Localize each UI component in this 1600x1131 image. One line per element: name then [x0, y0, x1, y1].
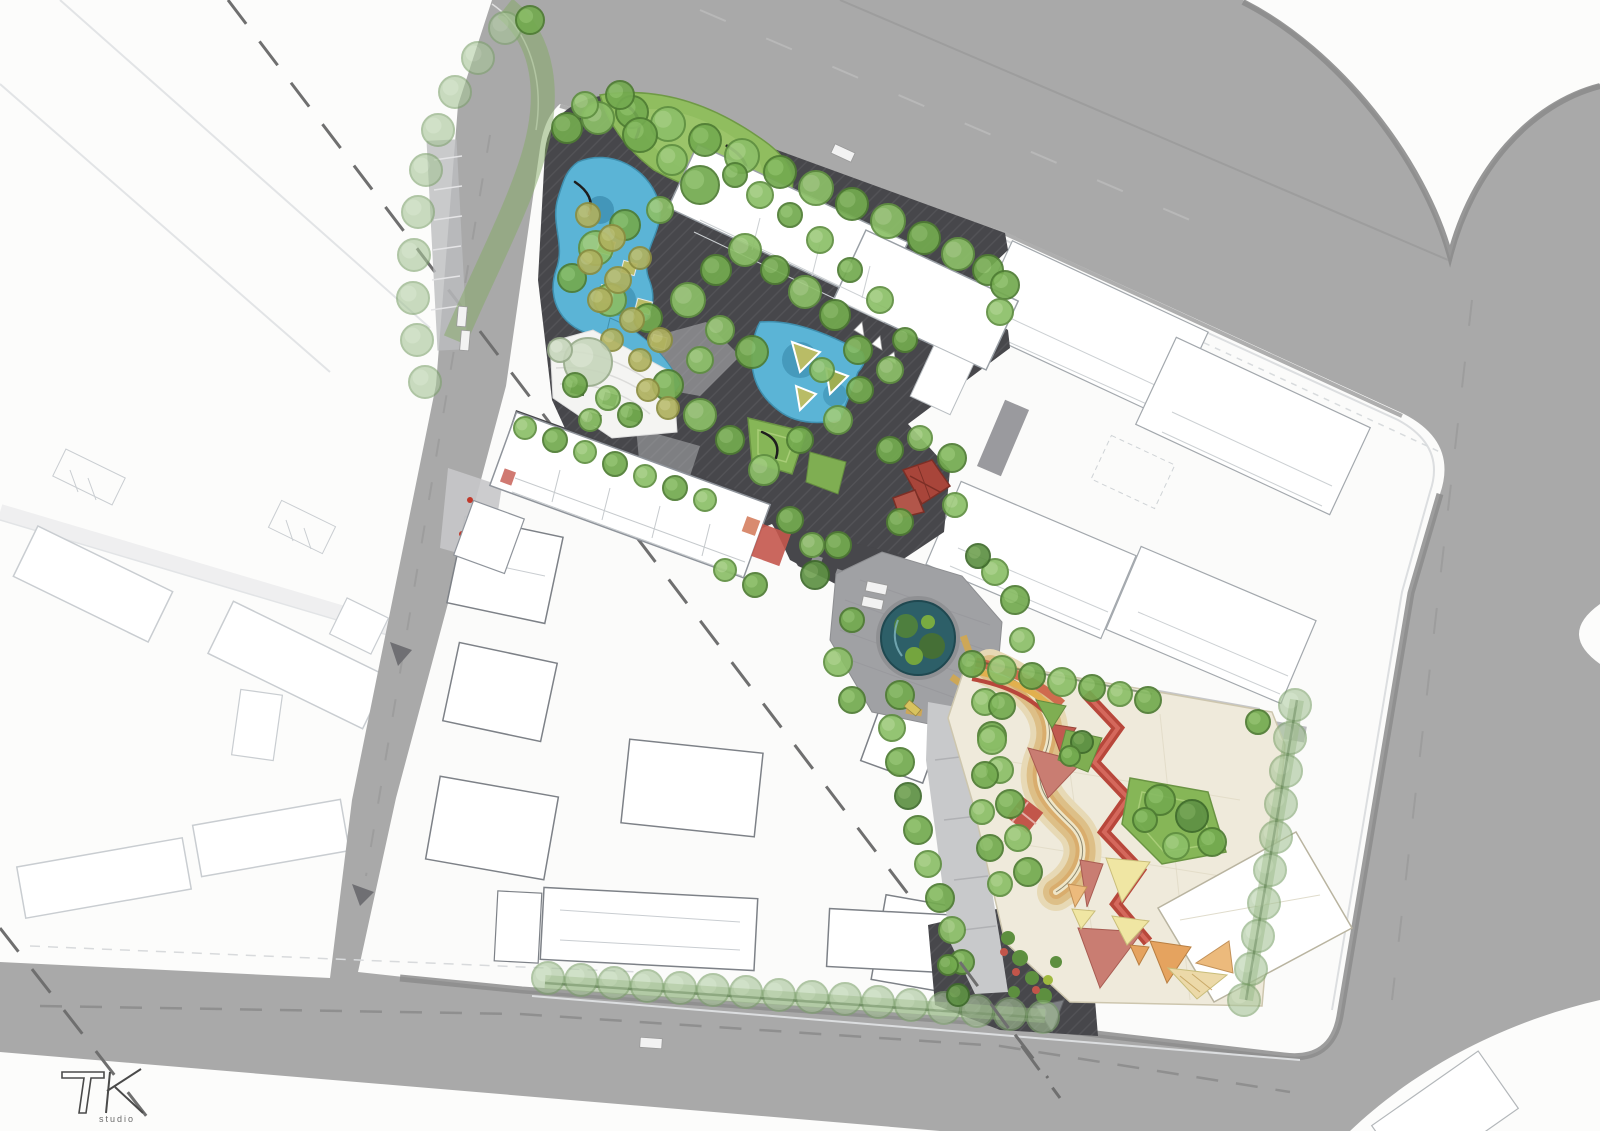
tree [1176, 800, 1208, 832]
tree [706, 316, 734, 344]
tree [1260, 821, 1292, 853]
tree [657, 397, 679, 419]
tree [989, 693, 1015, 719]
tree [398, 239, 430, 271]
tree [596, 386, 620, 410]
tree [1274, 722, 1306, 754]
tree [895, 989, 927, 1021]
tree [1279, 689, 1311, 721]
shrub [1025, 971, 1039, 985]
tree [743, 573, 767, 597]
shrub [1001, 931, 1015, 945]
tree [401, 324, 433, 356]
tree [747, 182, 773, 208]
tree [879, 715, 905, 741]
tree [565, 964, 597, 996]
tree [629, 247, 651, 269]
tree [532, 962, 564, 994]
tree [657, 145, 687, 175]
tree [939, 917, 965, 943]
tree [836, 188, 868, 220]
tree [1228, 984, 1260, 1016]
tree [410, 154, 442, 186]
site-building [540, 887, 757, 970]
tree [516, 6, 544, 34]
tree [943, 493, 967, 517]
tree [778, 203, 802, 227]
left-building [232, 689, 283, 760]
tree [938, 444, 966, 472]
tree [637, 379, 659, 401]
tree [1135, 687, 1161, 713]
tree [723, 163, 747, 187]
pond-plant [921, 615, 935, 629]
tree [462, 42, 494, 74]
car [457, 306, 468, 327]
tree [689, 124, 721, 156]
tree [966, 544, 990, 568]
tree [548, 338, 572, 362]
tree [1108, 682, 1132, 706]
tree [572, 92, 598, 118]
tree [1060, 746, 1080, 766]
tree [862, 986, 894, 1018]
tree [908, 222, 940, 254]
pond-plant [894, 614, 918, 638]
shrub [1050, 956, 1062, 968]
tree [543, 428, 567, 452]
tree [829, 983, 861, 1015]
tree [1163, 833, 1189, 859]
tree [631, 970, 663, 1002]
tree [681, 166, 719, 204]
tree [578, 250, 602, 274]
tree [1270, 755, 1302, 787]
tree [736, 336, 768, 368]
tree [926, 884, 954, 912]
tree [397, 282, 429, 314]
tree [871, 204, 905, 238]
tree [618, 403, 642, 427]
tree [1235, 953, 1267, 985]
tree [588, 288, 612, 312]
tree [576, 203, 600, 227]
tree [402, 196, 434, 228]
tree [422, 114, 454, 146]
tree [1019, 663, 1045, 689]
tree [684, 399, 716, 431]
tree [1246, 710, 1270, 734]
tree [634, 465, 656, 487]
logo-studio-text: studio [82, 1114, 152, 1124]
tree [687, 347, 713, 373]
tree [938, 955, 958, 975]
tree [514, 417, 536, 439]
shrub-yellow [1043, 975, 1053, 985]
tree [623, 118, 657, 152]
tree [1265, 788, 1297, 820]
tree [959, 651, 985, 677]
tree [439, 76, 471, 108]
pond-plant [905, 647, 923, 665]
tree [1001, 586, 1029, 614]
tree [844, 336, 872, 364]
tree [887, 509, 913, 535]
tree [824, 406, 852, 434]
site-building [494, 891, 542, 963]
tree [904, 816, 932, 844]
tree [877, 357, 903, 383]
tree [579, 409, 601, 431]
tree [825, 532, 851, 558]
tree [867, 287, 893, 313]
tree [988, 872, 1012, 896]
tree [1027, 1001, 1059, 1033]
tree [908, 426, 932, 450]
tree [1048, 668, 1076, 696]
tree [701, 255, 731, 285]
tree [1254, 854, 1286, 886]
tree [1014, 858, 1042, 886]
tree [789, 276, 821, 308]
tree [1010, 628, 1034, 652]
tree [893, 328, 917, 352]
tree [807, 227, 833, 253]
tree [777, 507, 803, 533]
tree [761, 256, 789, 284]
tree [603, 452, 627, 476]
car [640, 1037, 663, 1049]
tree [716, 426, 744, 454]
tree [820, 300, 850, 330]
tree [1242, 920, 1274, 952]
masterplan: studio [0, 0, 1600, 1131]
tree [749, 455, 779, 485]
tree [991, 271, 1019, 299]
tree [620, 308, 644, 332]
tree [648, 328, 672, 352]
masterplan-svg [0, 0, 1600, 1131]
tree [563, 373, 587, 397]
tree [574, 441, 596, 463]
tree [824, 648, 852, 676]
tree [847, 377, 873, 403]
tree [799, 171, 833, 205]
tree [840, 608, 864, 632]
tree [988, 656, 1016, 684]
tree [605, 267, 631, 293]
tree [647, 197, 673, 223]
tree [810, 358, 834, 382]
tree [694, 489, 716, 511]
tree [599, 225, 625, 251]
tree [978, 726, 1006, 754]
tree [877, 437, 903, 463]
tree [947, 984, 969, 1006]
tree [730, 976, 762, 1008]
tree [787, 427, 813, 453]
tree [796, 981, 828, 1013]
tree [606, 81, 634, 109]
tree [801, 561, 829, 589]
tree [1248, 887, 1280, 919]
tree [977, 835, 1003, 861]
site-building [621, 739, 763, 837]
patch-dot [467, 497, 473, 503]
tree [671, 283, 705, 317]
tree [764, 156, 796, 188]
tree [839, 687, 865, 713]
shrub [1008, 986, 1020, 998]
tree [714, 559, 736, 581]
tree [729, 234, 761, 266]
tree [552, 113, 582, 143]
tree [629, 349, 651, 371]
tree [987, 299, 1013, 325]
tree [915, 851, 941, 877]
tree [409, 366, 441, 398]
tree [763, 979, 795, 1011]
tree [1079, 675, 1105, 701]
tree [664, 972, 696, 1004]
tree [970, 800, 994, 824]
tree [838, 258, 862, 282]
tree [697, 974, 729, 1006]
tree [1198, 828, 1226, 856]
tree [663, 476, 687, 500]
shrub-red [1012, 968, 1020, 976]
shrub-red [1032, 986, 1040, 994]
tree [996, 790, 1024, 818]
tree [800, 533, 824, 557]
tree [942, 238, 974, 270]
tree [1005, 825, 1031, 851]
tree [886, 748, 914, 776]
tree [1133, 808, 1157, 832]
tree [972, 762, 998, 788]
tree [895, 783, 921, 809]
car [460, 330, 471, 351]
shrub [1012, 950, 1028, 966]
tree [598, 967, 630, 999]
shrub-red [1000, 948, 1008, 956]
